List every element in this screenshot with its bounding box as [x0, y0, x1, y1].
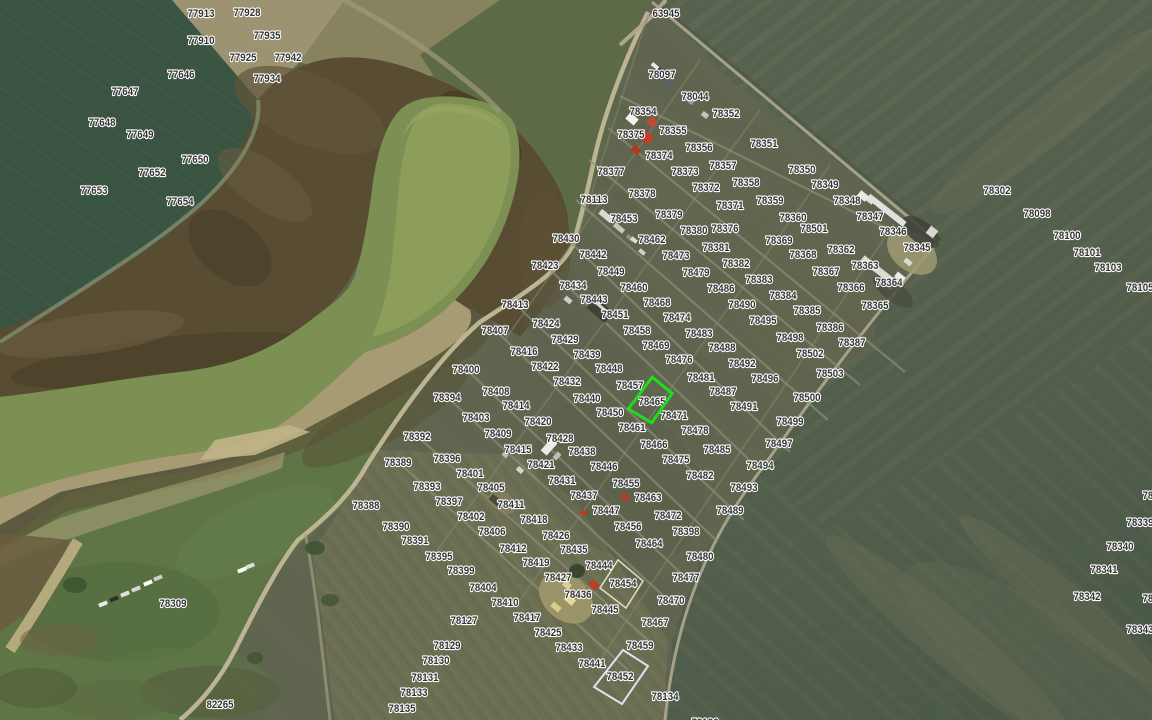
- svg-text:78395: 78395: [426, 551, 453, 563]
- svg-text:78432: 78432: [554, 376, 581, 388]
- svg-text:78499: 78499: [777, 416, 804, 428]
- svg-text:77942: 77942: [275, 52, 302, 64]
- svg-text:78493: 78493: [731, 482, 758, 494]
- svg-text:78358: 78358: [733, 177, 760, 189]
- svg-text:78473: 78473: [663, 250, 690, 262]
- svg-text:78462: 78462: [639, 234, 666, 246]
- svg-text:78341: 78341: [1091, 564, 1118, 576]
- svg-text:78427: 78427: [545, 572, 572, 584]
- svg-text:78480: 78480: [687, 551, 714, 563]
- svg-text:77654: 77654: [167, 196, 195, 208]
- svg-text:78386: 78386: [817, 322, 844, 334]
- svg-text:78349: 78349: [812, 179, 839, 191]
- svg-text:78366: 78366: [838, 282, 865, 294]
- svg-text:78406: 78406: [479, 526, 506, 538]
- svg-text:78498: 78498: [777, 332, 804, 344]
- svg-text:78344: 78344: [1143, 593, 1152, 605]
- svg-text:78345: 78345: [904, 242, 931, 254]
- svg-text:78468: 78468: [644, 297, 671, 309]
- svg-text:78351: 78351: [751, 138, 778, 150]
- svg-text:78098: 78098: [1024, 208, 1051, 220]
- svg-text:77650: 77650: [182, 154, 209, 166]
- svg-text:78460: 78460: [621, 282, 648, 294]
- svg-text:78385: 78385: [794, 305, 821, 317]
- svg-text:78355: 78355: [660, 125, 687, 137]
- svg-text:78416: 78416: [511, 346, 538, 358]
- svg-text:78477: 78477: [673, 572, 700, 584]
- svg-text:78400: 78400: [453, 364, 480, 376]
- svg-text:78457: 78457: [617, 380, 644, 392]
- svg-text:78357: 78357: [710, 160, 737, 172]
- svg-text:78097: 78097: [649, 69, 676, 81]
- svg-text:78452: 78452: [607, 671, 634, 683]
- svg-text:78391: 78391: [402, 535, 429, 547]
- svg-text:78105: 78105: [1127, 282, 1152, 294]
- svg-text:78362: 78362: [828, 244, 855, 256]
- svg-text:78466: 78466: [641, 439, 668, 451]
- svg-text:78483: 78483: [686, 328, 713, 340]
- svg-text:78424: 78424: [533, 318, 561, 330]
- svg-text:78425: 78425: [535, 627, 562, 639]
- svg-text:77934: 77934: [254, 73, 282, 85]
- svg-text:78127: 78127: [451, 615, 478, 627]
- svg-text:78423: 78423: [532, 260, 559, 272]
- svg-text:78368: 78368: [790, 249, 817, 261]
- svg-text:78440: 78440: [574, 393, 601, 405]
- svg-text:78467: 78467: [642, 617, 669, 629]
- svg-text:78442: 78442: [580, 249, 607, 261]
- svg-text:78134: 78134: [652, 691, 680, 703]
- svg-text:78371: 78371: [717, 200, 744, 212]
- svg-text:78490: 78490: [729, 299, 756, 311]
- svg-text:78446: 78446: [591, 461, 618, 473]
- svg-text:78445: 78445: [592, 604, 619, 616]
- svg-text:78488: 78488: [709, 342, 736, 354]
- svg-text:82265: 82265: [207, 699, 234, 711]
- svg-text:78396: 78396: [434, 453, 461, 465]
- svg-text:78417: 78417: [514, 612, 541, 624]
- svg-text:78434: 78434: [560, 280, 588, 292]
- svg-text:78438: 78438: [569, 446, 596, 458]
- svg-text:78431: 78431: [549, 475, 576, 487]
- svg-text:78449: 78449: [598, 266, 625, 278]
- svg-text:78455: 78455: [613, 478, 640, 490]
- svg-text:78491: 78491: [731, 401, 758, 413]
- svg-text:78437: 78437: [571, 490, 598, 502]
- svg-text:78130: 78130: [423, 655, 450, 667]
- svg-text:78402: 78402: [458, 511, 485, 523]
- svg-text:78450: 78450: [597, 407, 624, 419]
- svg-text:78430: 78430: [553, 233, 580, 245]
- svg-text:78444: 78444: [586, 560, 614, 572]
- svg-text:78367: 78367: [813, 266, 840, 278]
- svg-text:78359: 78359: [757, 195, 784, 207]
- svg-text:78100: 78100: [1054, 230, 1081, 242]
- svg-text:78131: 78131: [412, 672, 439, 684]
- svg-text:78476: 78476: [666, 354, 693, 366]
- svg-text:78489: 78489: [717, 505, 744, 517]
- svg-text:78409: 78409: [485, 428, 512, 440]
- svg-text:78487: 78487: [710, 386, 737, 398]
- svg-text:78135: 78135: [389, 703, 416, 715]
- svg-text:78352: 78352: [713, 108, 740, 120]
- svg-text:78343: 78343: [1127, 624, 1152, 636]
- svg-text:78496: 78496: [752, 373, 779, 385]
- svg-text:78414: 78414: [503, 400, 531, 412]
- svg-text:78384: 78384: [770, 290, 798, 302]
- svg-text:78302: 78302: [984, 185, 1011, 197]
- svg-text:78403: 78403: [463, 412, 490, 424]
- svg-text:78348: 78348: [834, 195, 861, 207]
- svg-text:78502: 78502: [797, 348, 824, 360]
- svg-text:78383: 78383: [746, 274, 773, 286]
- svg-text:78439: 78439: [574, 349, 601, 361]
- svg-text:78397: 78397: [436, 496, 463, 508]
- svg-text:78448: 78448: [596, 363, 623, 375]
- svg-text:78372: 78372: [693, 182, 720, 194]
- svg-text:78309: 78309: [160, 598, 187, 610]
- svg-text:78419: 78419: [523, 557, 550, 569]
- svg-text:78393: 78393: [414, 481, 441, 493]
- svg-text:78408: 78408: [483, 386, 510, 398]
- svg-text:78363: 78363: [852, 260, 879, 272]
- svg-text:78375: 78375: [618, 129, 645, 141]
- svg-text:78340: 78340: [1107, 541, 1134, 553]
- svg-text:78471: 78471: [661, 410, 688, 422]
- svg-text:78398: 78398: [673, 526, 700, 538]
- svg-text:63945: 63945: [653, 8, 680, 20]
- svg-text:78481: 78481: [688, 372, 715, 384]
- svg-text:78412: 78412: [500, 543, 527, 555]
- svg-text:78429: 78429: [552, 334, 579, 346]
- svg-text:78503: 78503: [817, 368, 844, 380]
- svg-text:78394: 78394: [434, 392, 462, 404]
- svg-text:78420: 78420: [525, 416, 552, 428]
- svg-text:78342: 78342: [1074, 591, 1101, 603]
- svg-text:78475: 78475: [663, 454, 690, 466]
- svg-text:78379: 78379: [656, 209, 683, 221]
- svg-text:78389: 78389: [385, 457, 412, 469]
- svg-text:78456: 78456: [615, 521, 642, 533]
- svg-text:78443: 78443: [581, 294, 608, 306]
- svg-text:78044: 78044: [682, 91, 710, 103]
- svg-text:78365: 78365: [862, 300, 889, 312]
- svg-text:78464: 78464: [636, 538, 664, 550]
- svg-text:78422: 78422: [532, 361, 559, 373]
- svg-text:78129: 78129: [434, 640, 461, 652]
- svg-text:78356: 78356: [686, 142, 713, 154]
- svg-text:78411: 78411: [498, 499, 525, 511]
- svg-text:78413: 78413: [502, 299, 529, 311]
- svg-text:78382: 78382: [723, 258, 750, 270]
- svg-text:78407: 78407: [482, 325, 509, 337]
- svg-text:78113: 78113: [581, 194, 608, 206]
- svg-text:78497: 78497: [766, 438, 793, 450]
- svg-text:78387: 78387: [839, 337, 866, 349]
- svg-text:78369: 78369: [766, 235, 793, 247]
- svg-text:78364: 78364: [876, 277, 904, 289]
- svg-text:78401: 78401: [457, 468, 484, 480]
- svg-text:78380: 78380: [681, 225, 708, 237]
- svg-text:78405: 78405: [478, 482, 505, 494]
- svg-text:78435: 78435: [561, 544, 588, 556]
- svg-text:78433: 78433: [556, 642, 583, 654]
- svg-text:78338: 78338: [1143, 490, 1152, 502]
- svg-text:78463: 78463: [635, 492, 662, 504]
- svg-text:77652: 77652: [139, 167, 166, 179]
- svg-text:78500: 78500: [794, 392, 821, 404]
- svg-text:78436: 78436: [565, 589, 592, 601]
- svg-text:78447: 78447: [593, 505, 620, 517]
- svg-text:78378: 78378: [629, 188, 656, 200]
- svg-text:78101: 78101: [1074, 247, 1101, 259]
- svg-text:78459: 78459: [627, 640, 654, 652]
- svg-text:78103: 78103: [1095, 262, 1122, 274]
- svg-text:78461: 78461: [619, 422, 646, 434]
- svg-text:77910: 77910: [188, 35, 215, 47]
- svg-text:77648: 77648: [89, 117, 116, 129]
- svg-text:77913: 77913: [188, 8, 215, 20]
- svg-text:78458: 78458: [624, 325, 651, 337]
- svg-text:78390: 78390: [383, 521, 410, 533]
- svg-text:78495: 78495: [750, 315, 777, 327]
- svg-text:78494: 78494: [747, 460, 775, 472]
- svg-text:77649: 77649: [127, 129, 154, 141]
- svg-text:77935: 77935: [254, 30, 281, 42]
- svg-text:77928: 77928: [234, 7, 261, 19]
- svg-text:78454: 78454: [610, 578, 638, 590]
- svg-text:78470: 78470: [658, 595, 685, 607]
- svg-text:78376: 78376: [712, 223, 739, 235]
- svg-text:78133: 78133: [401, 687, 428, 699]
- svg-text:78377: 78377: [598, 166, 625, 178]
- svg-text:78479: 78479: [683, 267, 710, 279]
- svg-text:78388: 78388: [353, 500, 380, 512]
- svg-text:78346: 78346: [880, 226, 907, 238]
- svg-text:78354: 78354: [630, 106, 658, 118]
- svg-text:78428: 78428: [547, 433, 574, 445]
- svg-text:78421: 78421: [528, 459, 555, 471]
- svg-text:78410: 78410: [492, 597, 519, 609]
- svg-text:78482: 78482: [687, 470, 714, 482]
- svg-text:78418: 78418: [521, 514, 548, 526]
- svg-text:78374: 78374: [646, 150, 674, 162]
- svg-text:77647: 77647: [112, 86, 139, 98]
- svg-text:78451: 78451: [602, 309, 629, 321]
- svg-text:78415: 78415: [505, 444, 532, 456]
- svg-text:78441: 78441: [579, 658, 606, 670]
- svg-text:78474: 78474: [664, 312, 692, 324]
- svg-text:78404: 78404: [470, 582, 498, 594]
- svg-text:78373: 78373: [672, 166, 699, 178]
- svg-text:78485: 78485: [704, 444, 731, 456]
- svg-text:78339: 78339: [1127, 517, 1152, 529]
- svg-text:78486: 78486: [708, 283, 735, 295]
- svg-text:78453: 78453: [611, 213, 638, 225]
- svg-text:77653: 77653: [81, 185, 108, 197]
- svg-text:78478: 78478: [682, 425, 709, 437]
- svg-text:78469: 78469: [643, 340, 670, 352]
- svg-text:77925: 77925: [230, 52, 257, 64]
- svg-text:78392: 78392: [404, 431, 431, 443]
- svg-text:78350: 78350: [789, 164, 816, 176]
- svg-text:78399: 78399: [448, 565, 475, 577]
- svg-text:78492: 78492: [729, 358, 756, 370]
- svg-text:78381: 78381: [703, 242, 730, 254]
- svg-text:78426: 78426: [543, 530, 570, 542]
- svg-text:78347: 78347: [857, 211, 884, 223]
- svg-text:77646: 77646: [168, 69, 195, 81]
- svg-text:78472: 78472: [655, 510, 682, 522]
- svg-text:78501: 78501: [801, 223, 828, 235]
